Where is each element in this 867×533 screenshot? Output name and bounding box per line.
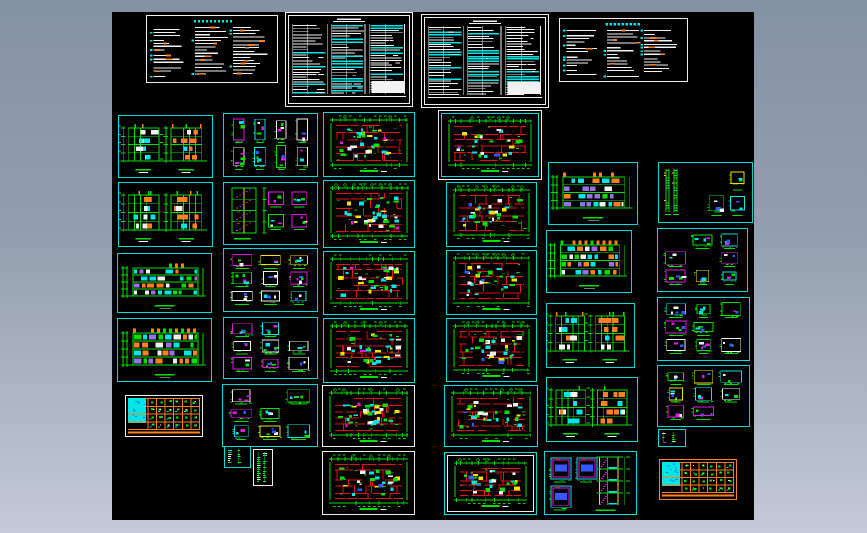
drawing-canvas[interactable] (112, 12, 754, 520)
plan-drawing (323, 452, 414, 514)
sheet-details-f1[interactable] (658, 162, 753, 223)
stair-drawing (545, 452, 636, 514)
schedule-drawing (660, 460, 736, 499)
sheet-details-f2[interactable] (657, 228, 748, 292)
sheet-plan-c3[interactable] (323, 251, 415, 315)
schedule-drawing (126, 396, 202, 436)
notes-drawing (147, 16, 277, 82)
sheet-elev-e3[interactable] (546, 303, 635, 368)
elevlong-drawing (118, 319, 211, 381)
sheet-spec-1[interactable] (285, 12, 413, 107)
sheet-elev-e1[interactable] (548, 162, 638, 225)
sheet-elev-e4[interactable] (546, 377, 638, 442)
strips-drawing (254, 450, 272, 485)
sheet-plan-c5[interactable] (322, 385, 415, 447)
elevlong-drawing (549, 163, 637, 224)
elevlong-drawing (118, 254, 211, 312)
sheet-plan-c6[interactable] (322, 451, 415, 515)
sheet-elev-a4[interactable] (117, 318, 212, 382)
plan-drawing (447, 183, 536, 246)
sheet-stair-b2[interactable] (223, 182, 318, 245)
sheet-elev-a1[interactable] (118, 115, 213, 178)
elevpair-drawing (547, 304, 634, 367)
plan-drawing (442, 114, 538, 176)
elevpair-drawing (119, 116, 212, 177)
spec-drawing (425, 18, 545, 104)
plan-drawing (447, 319, 536, 381)
elevlong-drawing (547, 231, 631, 292)
sheet-spec-2[interactable] (421, 14, 549, 108)
sheet-strips-f5[interactable] (658, 429, 686, 447)
elevpair-drawing (547, 378, 637, 441)
sheet-schedule-a[interactable] (125, 395, 203, 437)
cad-preview-background (0, 0, 867, 533)
sheet-strips-b7[interactable] (253, 449, 273, 486)
sheet-details-f4[interactable] (657, 365, 750, 427)
sheet-elev-a3[interactable] (117, 253, 212, 313)
sheet-inner-frame (424, 17, 546, 105)
sheet-plan-c2[interactable] (323, 180, 415, 248)
strips-drawing (225, 447, 250, 467)
details-drawing (224, 249, 317, 311)
details-drawing (658, 298, 749, 360)
plan-drawing (324, 252, 414, 314)
plan-drawing (324, 113, 414, 176)
sheet-stair-e5[interactable] (544, 451, 637, 515)
sheet-plan-c4[interactable] (323, 318, 415, 383)
sheet-strips-b6[interactable] (224, 446, 251, 468)
sheet-inner-frame (447, 455, 534, 512)
sheet-schedule-f[interactable] (659, 459, 737, 500)
sheet-plan-d3[interactable] (446, 250, 537, 315)
sheet-details-b5[interactable] (222, 384, 318, 447)
sheet-inner-frame (288, 15, 410, 104)
sheet-details-b4[interactable] (223, 317, 318, 379)
sheet-plan-c1[interactable] (323, 112, 415, 177)
stair-drawing (224, 183, 317, 244)
sheet-plan-d1[interactable] (438, 110, 542, 180)
sheet-plan-d6[interactable] (444, 452, 537, 515)
sheet-plan-d4[interactable] (446, 318, 537, 382)
details-drawing (224, 114, 317, 176)
spec-drawing (289, 16, 409, 103)
details-drawing (223, 385, 317, 446)
sheet-details-f3[interactable] (657, 297, 750, 361)
sheet-plan-d5[interactable] (444, 385, 538, 447)
sheet-elev-e2[interactable] (546, 230, 632, 293)
plan-drawing (445, 386, 537, 446)
plan-drawing (448, 456, 533, 511)
sheet-plan-d2[interactable] (446, 182, 537, 247)
sheet-details-b3[interactable] (223, 248, 318, 312)
details-drawing (224, 318, 317, 378)
details-drawing (658, 366, 749, 426)
sheet-details-b1[interactable] (223, 113, 318, 177)
plan-drawing (324, 319, 414, 382)
plan-drawing (447, 251, 536, 314)
strips-drawing (659, 430, 685, 446)
sheet-elev-a2[interactable] (118, 182, 213, 247)
sheet-notes-1[interactable] (146, 15, 278, 83)
details-drawing (658, 229, 747, 291)
plan-drawing (323, 386, 414, 446)
details-drawing (659, 163, 752, 222)
notes-drawing (560, 19, 687, 81)
elevpair-drawing (119, 183, 212, 246)
sheet-notes-2[interactable] (559, 18, 688, 82)
sheet-inner-frame (441, 113, 539, 177)
plan-drawing (324, 181, 414, 247)
